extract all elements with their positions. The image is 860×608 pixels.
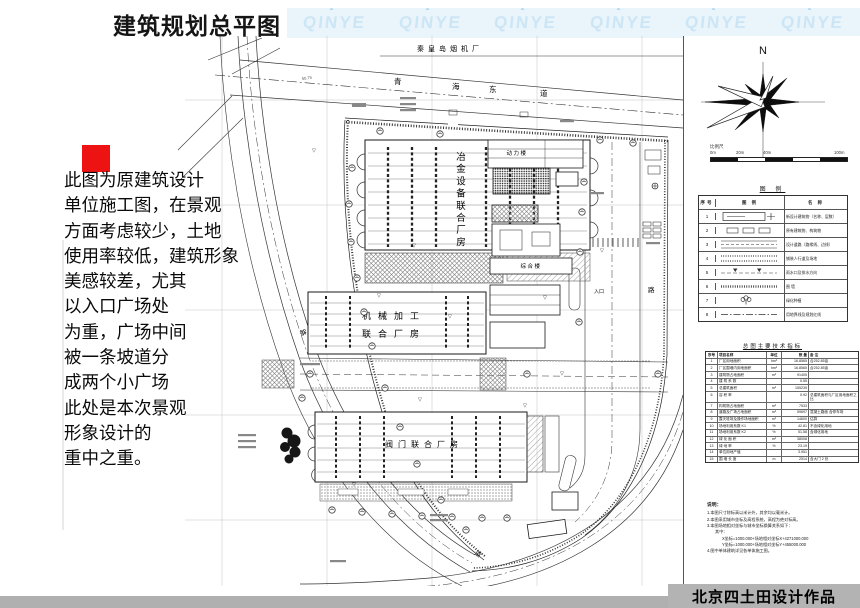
indicators-cell: 合252.85亩 [809, 365, 858, 371]
building-valve-workshop: 阀门联合厂房 [308, 412, 559, 482]
indicators-cell: 7533 [782, 403, 809, 409]
annotation-line: 成两个小广场 [64, 370, 296, 395]
legend-row-no: 6 [699, 283, 716, 290]
indicators-row: 14单位用地产值3.951 [706, 449, 858, 456]
logo-triangle-icon: ▲ [329, 8, 337, 12]
legend-row-name: 围 墙 [785, 283, 847, 291]
legend-row-symbol [716, 224, 785, 237]
indicators-cell: 单位用地产值 [718, 450, 767, 456]
legend-title: 图 例 [684, 184, 860, 193]
legend-col-name: 名 称 [785, 199, 847, 207]
logo-triangle-icon: ▲ [520, 8, 528, 12]
legend-row-name: 新设计建筑物（名称、层数） [785, 213, 847, 221]
scale-bar-block: 比例尺 0m 20m 40m 100m [710, 144, 848, 162]
tree-symbol [524, 371, 530, 377]
annotation-line: 此处是本次景观 [64, 396, 296, 421]
scale-bar [710, 157, 848, 162]
qinye-logo: ▲QINYE [684, 13, 749, 33]
indicators-row: 2厂区围墙内用地面积hm²16.8565合252.85亩 [706, 364, 858, 371]
notes-block: 说明： 1.本图尺寸除标高以米计外，其余均以毫米计。2.本图采用城市坐标及高程系… [707, 502, 847, 555]
designer-credit: 北京四土田设计作品 [668, 584, 860, 608]
legend-row-no: 2 [699, 227, 716, 234]
tree-symbol [307, 371, 313, 377]
tree-symbol [348, 239, 354, 245]
tree-symbol [329, 507, 335, 513]
legend-panel: N 比例尺 0m 20m 40m [683, 36, 860, 586]
ramp-paved-strip [365, 253, 503, 283]
indicators-cell: m² [767, 385, 782, 391]
dimension-label: 50.75 [302, 75, 313, 81]
indicators-title: 总图主要技术指标 [684, 342, 860, 350]
indicators-cell: 混凝土路面 含停车场 [809, 410, 858, 416]
legend-row: 1新设计建筑物（名称、层数） [699, 209, 847, 223]
indicators-cell: 11 [706, 430, 718, 436]
legend-row: 8用地界线及规划红线 [699, 307, 847, 321]
indicators-cell [767, 450, 782, 456]
indicators-cell: m² [767, 403, 782, 409]
indicators-cell: 绿 地 率 [718, 443, 767, 449]
building-metallurgy-label-char: 备 [456, 188, 466, 200]
tree-symbol [504, 515, 510, 521]
indicators-cell [809, 403, 858, 409]
legend-row-symbol [716, 238, 785, 251]
indicators-row: 13绿 地 率%23.19 [706, 442, 858, 449]
legend-row-symbol [716, 266, 785, 279]
indicators-cell [809, 385, 858, 391]
tree-symbol [389, 511, 395, 517]
legend-row: 4铺装人行道及场地 [699, 251, 847, 265]
indicators-cell: m² [767, 410, 782, 416]
legend-row-no: 3 [699, 241, 716, 248]
tree-symbol [419, 513, 425, 519]
benchmark-mark: ▽ [377, 293, 381, 299]
tree-symbol [597, 137, 603, 143]
indicators-cell: 14 [706, 450, 718, 456]
qinye-logo: ▲QINYE [302, 13, 367, 33]
indicators-cell: 容 积 率 [718, 392, 767, 402]
south-paved-band [320, 484, 512, 501]
qinye-logo: ▲QINYE [493, 13, 558, 33]
building-machining-workshop: 机械加工 联合厂房 [308, 292, 486, 354]
legend-row-symbol [716, 294, 785, 307]
indicators-cell: 估算 [809, 417, 858, 423]
indicators-cell: 8 [706, 410, 718, 416]
legend-row-no: 7 [699, 297, 716, 304]
annotation-text: 此图为原建筑设计单位施工图，在景观方面考虑较少，土地使用率较低，建筑形象美感较差… [64, 168, 296, 472]
indicators-row: 12绿 化 面 积m²38008 [706, 436, 858, 443]
indicators-cell: 59697 [782, 410, 809, 416]
indicators-row: 9露天堆场及操作场地面积m²14600估算 [706, 416, 858, 423]
building-power-label: 动力楼 [506, 149, 527, 157]
indicators-cell: 13 [706, 443, 718, 449]
legend-row-name: 用地界线及规划红线 [785, 311, 847, 319]
indicators-row: 15围 墙 长 度m2514含大门 2 处 [706, 456, 858, 463]
benchmark-mark: ▽ [543, 295, 547, 301]
indicators-cell: 不含绿化用地 [809, 423, 858, 429]
indicators-cell: 项目名称 [718, 352, 767, 358]
scale-tick: 0m [710, 150, 716, 155]
north-label: N [759, 45, 767, 57]
ramp-crossing [480, 358, 506, 390]
indicators-row: 6容 积 率0.92总建筑面积与厂区用地面积之比 [706, 391, 858, 402]
indicators-cell: m² [767, 372, 782, 378]
tree-symbol [449, 514, 455, 520]
indicators-cell: 155239 [782, 385, 809, 391]
legend-row-no: 4 [699, 255, 716, 262]
road-east-label: 路 [648, 285, 655, 294]
indicators-cell: 3 [706, 372, 718, 378]
benchmark-mark: ▽ [560, 371, 564, 377]
annotation-line: 形象设计的 [64, 421, 296, 446]
qinye-logo: ▲QINYE [589, 13, 654, 33]
indicators-cell [809, 379, 858, 385]
tree-symbol [437, 131, 443, 137]
indicators-cell: % [767, 423, 782, 429]
indicators-row: 5总建筑面积m²155239 [706, 384, 858, 391]
tree-symbol [359, 509, 365, 515]
benchmark-mark: ▽ [448, 314, 452, 320]
tree-symbol [299, 395, 305, 401]
notes-title: 说明： [707, 502, 847, 509]
indicators-cell: 总建筑面积与厂区用地面积之比 [809, 392, 858, 402]
logo-triangle-icon: ▲ [711, 8, 719, 12]
tree-symbol [479, 515, 485, 521]
legend-row-name: 雨水口及排水方向 [785, 269, 847, 277]
tree-symbol [377, 128, 383, 134]
legend-table: 序号 图 例 名 称 1新设计建筑物（名称、层数）2原有建筑物、构筑物3设计道路… [698, 195, 848, 322]
indicators-cell: 0.92 [782, 392, 809, 402]
tree-symbol [630, 140, 636, 146]
indicators-header-row: 序号项目名称单位数 量备 注 [706, 352, 858, 358]
legend-row-symbol [716, 252, 785, 265]
indicators-cell: 备 注 [809, 352, 858, 358]
building-metallurgy-label-char: 设 [456, 176, 466, 187]
indicators-cell: 构筑物占地面积 [718, 403, 767, 409]
building-machining-label-2: 联合厂房 [362, 328, 426, 339]
indicators-cell: 6 [706, 392, 718, 402]
tree-symbol [581, 179, 587, 185]
entrance-label: 入口 [594, 289, 604, 295]
indicators-row: 8道路及广场占地面积m²59697混凝土路面 含停车场 [706, 409, 858, 416]
indicators-cell: hm² [767, 365, 782, 371]
tree-symbol [438, 497, 444, 503]
road-west-label: 路 [298, 328, 309, 337]
benchmark-mark: ▽ [418, 397, 422, 403]
indicators-cell: 围 墙 长 度 [718, 457, 767, 463]
annotation-line: 为重，广场中间 [64, 320, 296, 345]
indicators-cell [767, 392, 782, 402]
legend-row-symbol [716, 308, 785, 321]
indicators-cell [809, 443, 858, 449]
annotation-line: 以入口广场处 [64, 294, 296, 319]
tree-symbol [577, 249, 583, 255]
indicators-cell [809, 450, 858, 456]
benchmark-mark: ▽ [312, 148, 316, 154]
benchmark-mark: ▽ [352, 482, 356, 488]
indicators-cell: 0.55 [782, 379, 809, 385]
tree-symbol [346, 201, 352, 207]
building-metallurgy-label-char: 冶 [456, 151, 466, 163]
indicators-cell [767, 379, 782, 385]
building-office-label: 综合楼 [520, 262, 541, 270]
building-metallurgy-label-char: 联 [456, 201, 466, 212]
scale-tick: 100m [834, 150, 844, 155]
indicators-cell: 4 [706, 379, 718, 385]
indicators-cell: 10 [706, 423, 718, 429]
building-metallurgy-label-char: 厂 [456, 225, 466, 236]
watermark-band: ▲QINYE▲QINYE▲QINYE▲QINYE▲QINYE▲QINYE [287, 8, 860, 38]
indicators-cell: 38008 [782, 437, 809, 443]
indicators-cell: 道路及广场占地面积 [718, 410, 767, 416]
indicators-cell [809, 372, 858, 378]
indicators-cell: 建筑物占地面积 [718, 372, 767, 378]
benchmark-mark: ▽ [600, 248, 604, 254]
building-metallurgy-label-char: 合 [456, 212, 466, 224]
tree-symbol [579, 209, 585, 215]
qinye-logo: ▲QINYE [398, 13, 463, 33]
tree-symbol [349, 165, 355, 171]
indicators-cell: 绿 化 面 积 [718, 437, 767, 443]
legend-row: 6围 墙 [699, 279, 847, 293]
indicators-cell [809, 437, 858, 443]
indicators-cell: 51.58 [782, 430, 809, 436]
indicators-cell: 单位 [767, 352, 782, 358]
indicators-cell: 23.19 [782, 443, 809, 449]
indicators-cell: 91405 [782, 372, 809, 378]
building-metallurgy-label-char: 金 [456, 163, 466, 175]
tree-symbol [369, 343, 375, 349]
road-north-char-3: 东 [489, 84, 497, 94]
annotation-line: 重中之重。 [64, 446, 296, 471]
road-north-char-1: 青 [394, 76, 402, 86]
indicators-cell: 合252.85亩 [809, 359, 858, 365]
indicators-row: 1厂区用地面积hm²16.8565合252.85亩 [706, 358, 858, 365]
indicators-row: 10场地利用系数 K1%42.81不含绿化用地 [706, 422, 858, 429]
indicators-cell: 16.8565 [782, 359, 809, 365]
indicators-cell: 含绿化用地 [809, 430, 858, 436]
scale-ticks: 0m 20m 40m 100m [710, 150, 848, 156]
legend-row-symbol [716, 210, 785, 223]
logo-triangle-icon: ▲ [424, 8, 432, 12]
indicators-cell: 2514 [782, 457, 809, 463]
legend-row: 3设计道路（路缘线、边线） [699, 237, 847, 251]
benchmark-mark: ▽ [523, 403, 527, 409]
logo-triangle-icon: ▲ [806, 8, 814, 12]
legend-row: 2原有建筑物、构筑物 [699, 223, 847, 237]
indicators-cell: 厂区用地面积 [718, 359, 767, 365]
tree-symbol [655, 371, 661, 377]
indicators-cell: 3.951 [782, 450, 809, 456]
qinye-logo: ▲QINYE [780, 13, 845, 33]
legend-row: 7绿化种植 [699, 293, 847, 307]
legend-row-name: 原有建筑物、构筑物 [785, 227, 847, 235]
annotation-line: 单位施工图，在景观 [64, 193, 296, 218]
indicators-cell: m² [767, 417, 782, 423]
indicators-cell: 2 [706, 365, 718, 371]
legend-row-no: 8 [699, 311, 716, 318]
presentation-slide: ▲QINYE▲QINYE▲QINYE▲QINYE▲QINYE▲QINYE 建筑规… [0, 0, 860, 608]
indicators-cell: 9 [706, 417, 718, 423]
indicators-cell: 数 量 [782, 352, 809, 358]
legend-row-name: 绿化种植 [785, 297, 847, 305]
annotation-line: 被一条坡道分 [64, 345, 296, 370]
annotation-line: 方面考虑较少，土地 [64, 219, 296, 244]
indicators-cell: 5 [706, 385, 718, 391]
legend-row-symbol [716, 280, 785, 293]
road-north-char-2: 海 [452, 81, 460, 91]
tree-symbol [576, 319, 582, 325]
indicators-cell: 场地利用系数 K1 [718, 423, 767, 429]
annotation-line: 使用率较低，建筑形象 [64, 244, 296, 269]
indicators-cell: % [767, 443, 782, 449]
annotation-line: 美感较差，尤其 [64, 269, 296, 294]
indicators-table: 序号项目名称单位数 量备 注1厂区用地面积hm²16.8565合252.85亩2… [705, 351, 859, 463]
tree-symbol [354, 275, 360, 281]
indicators-cell: 12 [706, 437, 718, 443]
indicators-cell: % [767, 430, 782, 436]
indicators-row: 4建 筑 系 数0.55 [706, 378, 858, 385]
scale-tick: 20m [736, 150, 744, 155]
legend-row: 5雨水口及排水方向 [699, 265, 847, 279]
indicators-row: 3建筑物占地面积m²91405 [706, 371, 858, 378]
legend-col-symbol: 图 例 [716, 196, 785, 209]
indicators-cell: 1 [706, 359, 718, 365]
legend-row-no: 5 [699, 269, 716, 276]
tree-symbol [414, 461, 420, 467]
scale-tick: 40m [763, 150, 771, 155]
indicators-cell: 露天堆场及操作场地面积 [718, 417, 767, 423]
indicators-cell: m [767, 457, 782, 463]
indicators-cell: 场地利用系数 K2 [718, 430, 767, 436]
tree-symbol [397, 424, 403, 430]
road-north-char-4: 道 [540, 88, 548, 98]
indicators-cell: 16.8565 [782, 365, 809, 371]
building-machining-label-1: 机械加工 [362, 310, 426, 321]
indicators-cell: 14600 [782, 417, 809, 423]
indicators-cell: 建 筑 系 数 [718, 379, 767, 385]
tree-symbol [463, 527, 469, 533]
building-valve-label: 阀门联合厂房 [385, 439, 463, 449]
indicators-cell: 厂区围墙内用地面积 [718, 365, 767, 371]
indicators-cell: 7 [706, 403, 718, 409]
legend-col-no: 序号 [699, 199, 716, 207]
logo-triangle-icon: ▲ [615, 8, 623, 12]
tree-symbol [382, 385, 388, 391]
indicators-cell: 15 [706, 457, 718, 463]
indicators-cell: hm² [767, 359, 782, 365]
note-line: 4.图中单体建筑详见各单体施工图。 [707, 548, 847, 554]
indicators-row: 11场地利用系数 K2%51.58含绿化用地 [706, 429, 858, 436]
indicators-cell: 含大门 2 处 [809, 457, 858, 463]
benchmark-mark: ▽ [412, 243, 416, 249]
indicators-row: 7构筑物占地面积m²7533 [706, 402, 858, 409]
indicators-cell: 序号 [706, 352, 718, 358]
annotation-line: 此图为原建筑设计 [64, 168, 296, 193]
indicators-cell: 42.81 [782, 423, 809, 429]
legend-row-no: 1 [699, 213, 716, 220]
indicators-cell: 总建筑面积 [718, 385, 767, 391]
indicators-cell: m² [767, 437, 782, 443]
neighbor-site-label: 秦皇岛烟机厂 [417, 44, 483, 53]
legend-row-name: 设计道路（路缘线、边线） [785, 241, 847, 249]
building-metallurgy-label-char: 房 [456, 236, 466, 248]
tree-symbol [361, 309, 367, 315]
legend-row-name: 铺装人行道及场地 [785, 255, 847, 263]
